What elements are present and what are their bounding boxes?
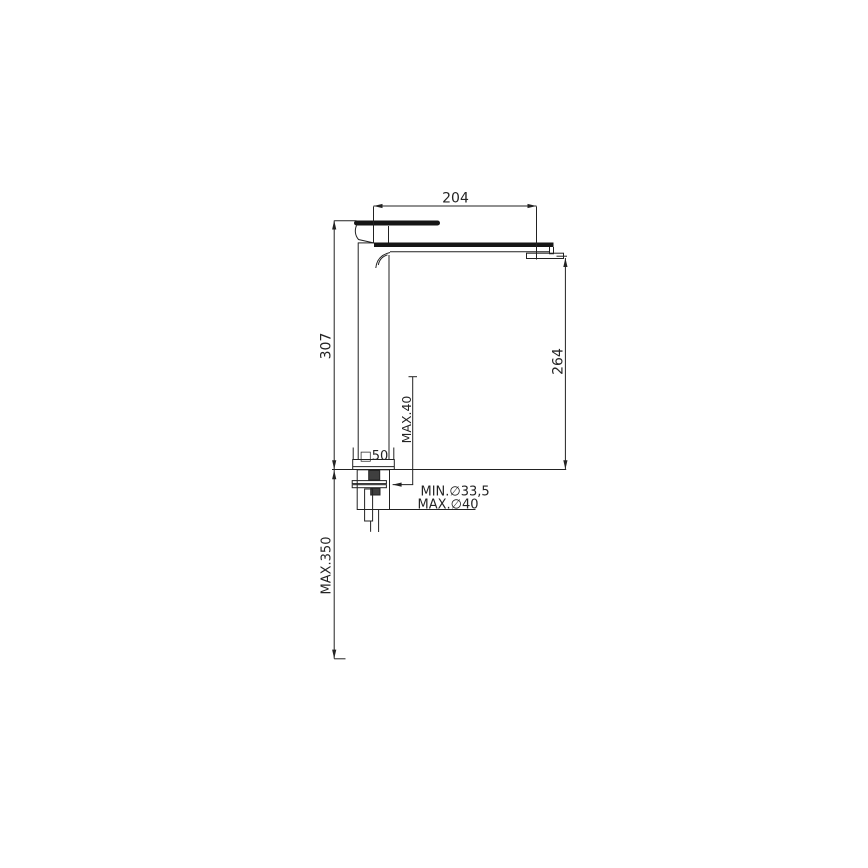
spout-end-cap (550, 247, 554, 254)
label-spout-reach: 204 (442, 191, 469, 207)
label-outlet-height: 264 (551, 348, 567, 375)
label-base-square: □50 (360, 449, 389, 464)
dim-350-arrow-top (332, 470, 336, 479)
technical-drawing-canvas: 204 307 264 MAX.40 □50 MIN.∅33,5 MAX.∅40… (0, 0, 868, 868)
fillet-outer-curve (376, 253, 390, 269)
dim-204-arrow-right (528, 204, 537, 208)
label-max-hole-diameter: MAX.∅40 (418, 497, 479, 512)
dim-40-arrow (393, 483, 402, 487)
fillet-inner-curve (378, 255, 387, 265)
faucet-dimension-drawing: 204 307 264 MAX.40 □50 MIN.∅33,5 MAX.∅40… (0, 0, 868, 868)
label-total-height: 307 (319, 333, 335, 360)
label-max-below-deck: MAX.350 (320, 537, 335, 595)
spout-bar (374, 243, 554, 248)
dim-204-arrow-left (374, 204, 383, 208)
dim-307-arrow-bottom (332, 460, 336, 469)
lever-handle (354, 221, 440, 226)
dimension-lines (332, 204, 568, 659)
dim-264-arrow-bottom (563, 460, 567, 469)
dimension-labels: 204 307 264 MAX.40 □50 MIN.∅33,5 MAX.∅40… (319, 191, 567, 595)
handle-back-edge (355, 226, 374, 244)
dim-307-arrow-top (332, 221, 336, 230)
dim-264-arrow-top (563, 258, 567, 267)
label-max-deck-thickness: MAX.40 (399, 396, 414, 444)
threaded-shank-upper (369, 471, 380, 481)
dim-350-arrow-bottom (332, 650, 336, 659)
